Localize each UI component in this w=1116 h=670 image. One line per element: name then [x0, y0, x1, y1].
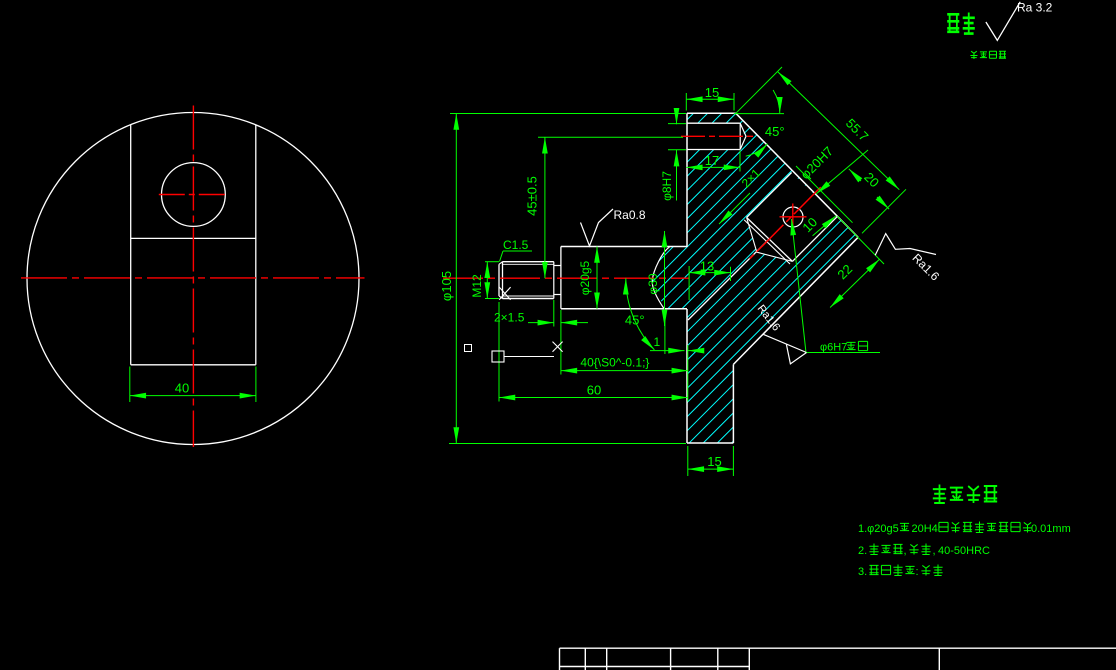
svg-text:15: 15: [707, 454, 721, 469]
svg-text:40: 40: [175, 381, 189, 396]
svg-text:φ20g5: φ20g5: [578, 260, 592, 295]
svg-text:45°: 45°: [765, 124, 785, 139]
svg-text:13: 13: [700, 259, 714, 274]
svg-text:φ105: φ105: [439, 271, 454, 301]
svg-text:45°: 45°: [625, 313, 645, 328]
svg-text:,: ,: [933, 545, 936, 557]
svg-text:1.φ20g5: 1.φ20g5: [858, 523, 899, 535]
svg-text:2.: 2.: [858, 545, 867, 557]
svg-text:20H4: 20H4: [912, 523, 938, 535]
svg-text:15: 15: [705, 85, 719, 100]
svg-text:0.01mm: 0.01mm: [1031, 523, 1071, 535]
svg-text:Ra0.8: Ra0.8: [614, 208, 646, 222]
svg-text:60: 60: [587, 383, 601, 398]
svg-text:M12: M12: [470, 274, 484, 298]
svg-text:Ra 3.2: Ra 3.2: [1017, 1, 1053, 15]
svg-text:φ8H7: φ8H7: [660, 171, 674, 201]
svg-text:φ6H7: φ6H7: [820, 342, 847, 354]
svg-text:1: 1: [653, 335, 660, 349]
svg-text:φ30: φ30: [646, 273, 660, 294]
svg-text:3.: 3.: [858, 566, 867, 578]
svg-text:17: 17: [705, 153, 719, 168]
svg-text:40{\S0^-0.1;}: 40{\S0^-0.1;}: [580, 356, 649, 370]
svg-text:40-50HRC: 40-50HRC: [938, 545, 990, 557]
svg-text:,: ,: [904, 545, 907, 557]
svg-text::: :: [916, 566, 919, 578]
svg-text:45±0.5: 45±0.5: [525, 176, 540, 216]
svg-text:C1.5: C1.5: [503, 238, 529, 252]
